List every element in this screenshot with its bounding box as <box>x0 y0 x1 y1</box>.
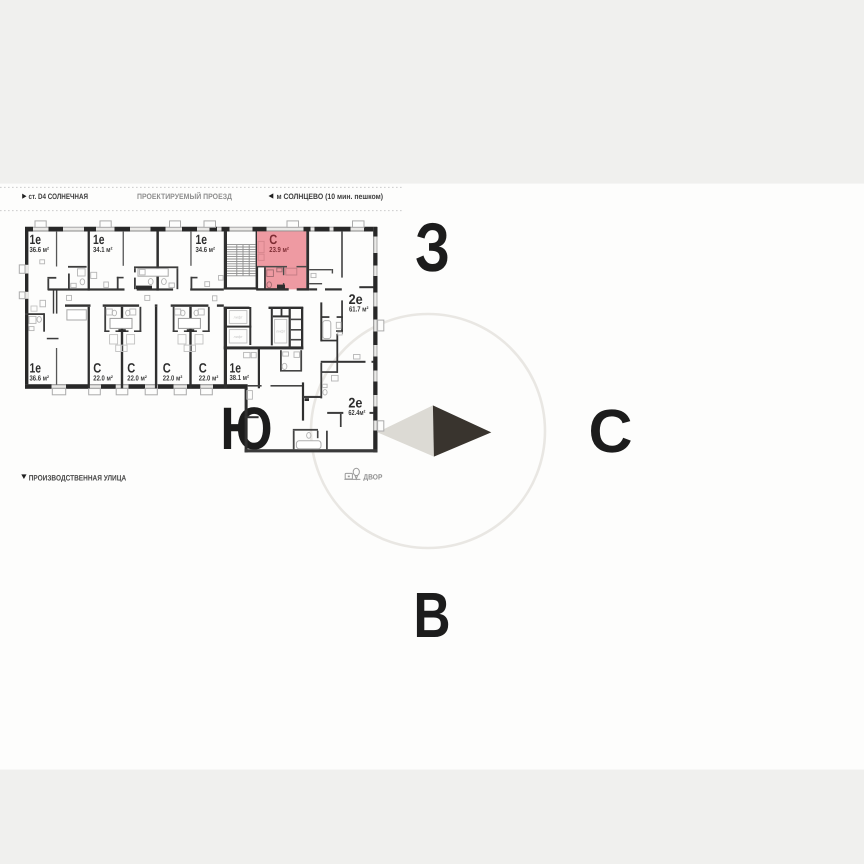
svg-text:34.6 м²: 34.6 м² <box>196 245 216 254</box>
svg-text:61.7 м²: 61.7 м² <box>349 305 369 314</box>
svg-text:22.0 м²: 22.0 м² <box>199 373 219 382</box>
svg-text:34.1 м²: 34.1 м² <box>93 245 113 254</box>
svg-text:лифт: лифт <box>234 316 243 320</box>
svg-text:38.1 м²: 38.1 м² <box>230 373 250 382</box>
svg-text:ПРОЕКТИРУЕМЫЙ ПРОЕЗД: ПРОЕКТИРУЕМЫЙ ПРОЕЗД <box>137 191 232 201</box>
svg-text:23.9 м²: 23.9 м² <box>269 245 289 254</box>
svg-text:22.0 м²: 22.0 м² <box>163 373 183 382</box>
svg-text:22.0 м²: 22.0 м² <box>127 373 147 382</box>
svg-text:С: С <box>589 397 633 465</box>
svg-text:36.6 м²: 36.6 м² <box>30 245 50 254</box>
svg-text:м СОЛНЦЕВО (10 мин. пешком): м СОЛНЦЕВО (10 мин. пешком) <box>277 192 384 201</box>
svg-text:36.6 м²: 36.6 м² <box>30 373 50 382</box>
svg-text:62.4м²: 62.4м² <box>348 408 365 417</box>
svg-text:лифт: лифт <box>234 335 243 339</box>
svg-text:лифт: лифт <box>276 330 285 334</box>
svg-text:ДВОР: ДВОР <box>363 472 382 481</box>
svg-text:ПРОИЗВОДСТВЕННАЯ УЛИЦА: ПРОИЗВОДСТВЕННАЯ УЛИЦА <box>29 474 127 483</box>
svg-text:22.0 м²: 22.0 м² <box>93 373 113 382</box>
svg-text:З: З <box>415 209 450 286</box>
svg-text:В: В <box>414 579 451 651</box>
svg-text:ст. D4 СОЛНЕЧНАЯ: ст. D4 СОЛНЕЧНАЯ <box>29 192 89 201</box>
